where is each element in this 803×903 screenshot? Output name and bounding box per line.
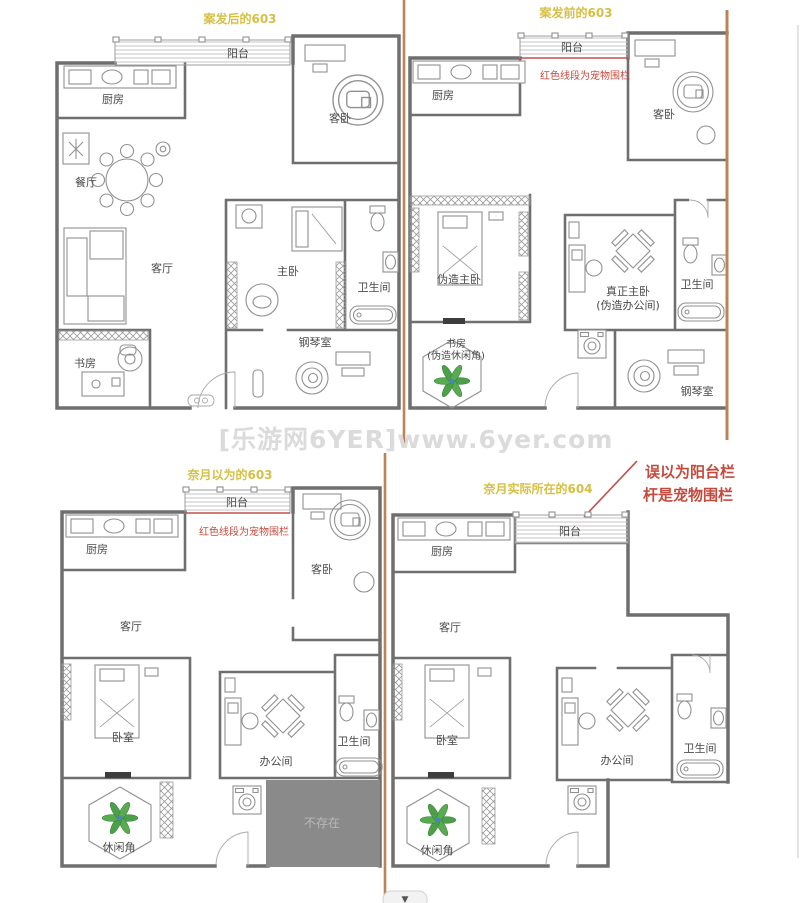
room-label-kitchen: 厨房 [431, 545, 453, 558]
diamond-table-icon [598, 680, 657, 739]
plan-title: 奈月以为的603 [186, 467, 272, 482]
plan-title: 案发前的603 [538, 5, 612, 20]
bed-icon [425, 665, 469, 738]
bedroom-furniture-icon [393, 664, 491, 778]
entry-door-icon [188, 372, 235, 408]
room-label-bath: 卫生间 [681, 277, 714, 291]
room-label-master: 主卧 [277, 265, 299, 278]
floorplan-page: 案发后的603 阳台 厨房 客卧 [0, 0, 803, 903]
diamond-table-icon [603, 221, 662, 280]
lamp-icon [156, 142, 170, 156]
room-label-kitchen: 厨房 [102, 93, 124, 106]
room-label-kitchen: 厨房 [432, 89, 454, 102]
entry-door-icon [545, 373, 578, 408]
room-label-piano: 钢琴室 [681, 384, 714, 398]
room-label-leisure: 休闲角 [103, 840, 136, 854]
room-label-guest: 客卧 [329, 111, 351, 125]
room-label-living: 客厅 [151, 261, 173, 275]
room-label-bedroom: 卧室 [436, 733, 458, 747]
doormat-icon [428, 772, 454, 778]
room-label-kitchen: 厨房 [86, 543, 108, 556]
room-label-study-1: 书房 [446, 337, 466, 350]
kitchen-counter-icon [398, 518, 510, 540]
room-label-study: 书房 [74, 357, 96, 370]
shelf-column-icon [160, 782, 173, 838]
pet-fence-note: 红色线段为宠物围栏 [540, 69, 630, 82]
real-master-office [569, 221, 663, 292]
balcony: 阳台 [183, 487, 291, 513]
office-furniture-icon [562, 678, 658, 745]
room-label-dining: 餐厅 [75, 175, 97, 189]
doormat-icon [105, 772, 131, 778]
plant-icon [102, 801, 138, 836]
bathroom-fixtures-icon [677, 655, 726, 778]
balcony: 阳台 [113, 37, 291, 65]
watermark: [乐游网6YER]www.6yer.com [219, 425, 614, 454]
kitchen-counter-icon [413, 61, 525, 83]
kitchen-counter-icon [66, 515, 178, 537]
room-label-office: 办公间 [260, 755, 293, 768]
bookshelf-icon [59, 331, 148, 340]
missing-area-label: 不存在 [304, 816, 340, 830]
pet-fence-note: 红色线段为宠物围栏 [199, 525, 289, 538]
guest-bedroom-furniture-icon [303, 494, 374, 592]
diamond-table-icon [253, 686, 312, 745]
room-label-balcony: 阳台 [559, 524, 581, 538]
room-label-guest: 客卧 [311, 562, 333, 576]
room-label-bath: 卫生间 [684, 741, 717, 755]
plan-imagined-603: 奈月以为的603 阳台 红色线段为宠物围栏 厨房 客卧 客厅 [62, 467, 382, 867]
balcony-rail-note-line2: 杆是宠物围栏 [643, 486, 733, 504]
desk-icon [569, 245, 602, 292]
missing-area: 不存在 [266, 780, 380, 867]
room-label-balcony: 阳台 [227, 46, 249, 60]
room-label-living: 客厅 [120, 619, 142, 633]
bed-icon [95, 665, 139, 738]
kitchen-counter-icon [64, 66, 176, 88]
bedroom-furniture-icon [62, 664, 158, 778]
room-label-real-master-2: (伪造办公间) [596, 298, 660, 312]
room-label-leisure: 休闲角 [421, 843, 454, 857]
bathroom-fixtures-icon [678, 200, 727, 321]
dining-table-icon [92, 145, 163, 216]
piano-icon [296, 352, 370, 394]
guest-bedroom-furniture-icon [635, 40, 715, 144]
room-label-real-master-1: 真正主卧 [606, 284, 650, 298]
floorplan-canvas: 案发后的603 阳台 厨房 客卧 [0, 0, 803, 903]
chevron-down-icon: ▼ [402, 895, 409, 903]
washing-machine-icon [233, 786, 261, 814]
scroll-down-button[interactable]: ▼ [383, 891, 427, 903]
plan-actual-604: 奈月实际所在的604 误以为阳台栏 杆是宠物围栏 阳台 厨房 客厅 卧室 [393, 461, 735, 866]
room-label-bedroom: 卧室 [112, 730, 134, 744]
lamp-inner-icon [160, 146, 166, 152]
fake-master-bedroom [410, 196, 530, 324]
plan-after-603: 案发后的603 阳台 厨房 客卧 [57, 11, 399, 408]
balcony-rail-note-line1: 误以为阳台栏 [645, 463, 735, 481]
plan-title: 奈月实际所在的604 [482, 481, 592, 496]
room-label-piano: 钢琴室 [299, 335, 332, 349]
bathroom-fixtures-icon [350, 206, 398, 324]
plan-title: 案发后的603 [202, 11, 276, 26]
balcony: 阳台 [518, 33, 628, 58]
plant-icon [434, 364, 470, 399]
study-furniture-icon [82, 345, 142, 396]
room-label-study-2: (伪造休闲角) [427, 349, 485, 362]
washing-machine-icon [578, 330, 606, 358]
room-label-balcony: 阳台 [561, 40, 583, 54]
room-label-fake-master: 伪造主卧 [437, 272, 481, 286]
balcony: 阳台 [513, 512, 628, 543]
washing-machine-icon [568, 786, 596, 814]
room-label-office: 办公间 [601, 754, 634, 767]
room-label-bath: 卫生间 [358, 280, 391, 294]
sofa-icon [64, 228, 126, 324]
room-label-bath: 卫生间 [338, 734, 371, 748]
office-furniture-icon [225, 678, 313, 746]
room-label-living: 客厅 [439, 620, 461, 634]
shelf-column-icon [482, 788, 495, 844]
room-label-guest: 客卧 [653, 107, 675, 121]
plan-before-603: 案发前的603 阳台 红色线段为宠物围栏 厨房 客卧 [410, 5, 727, 408]
radiator-icon [253, 370, 263, 397]
entry-door-icon [216, 832, 248, 866]
fridge-icon [63, 133, 89, 164]
plant-icon [420, 803, 456, 838]
entry-door-icon [546, 832, 578, 866]
doormat-icon [443, 318, 465, 324]
room-label-balcony: 阳台 [226, 495, 248, 509]
